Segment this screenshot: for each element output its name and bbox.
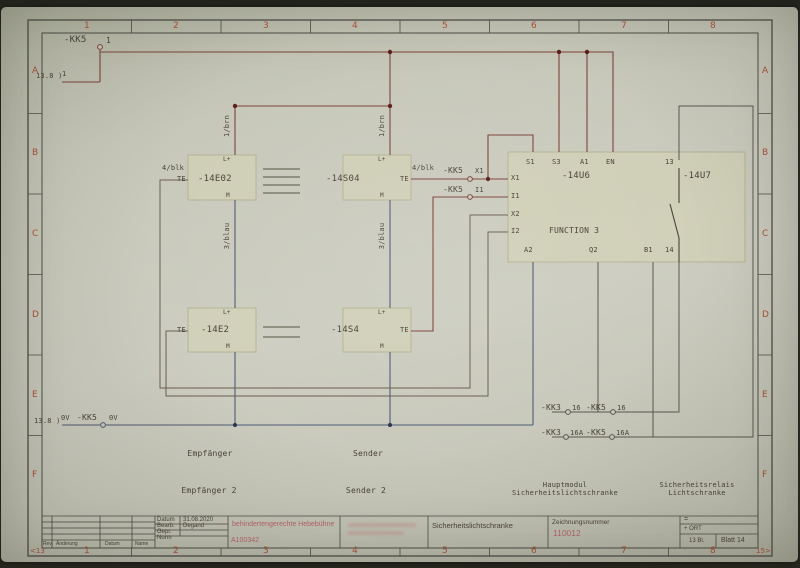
s4-m-terminal: M [380,343,384,350]
wiring-te-loops [160,180,508,396]
kk5-16-connector-label: -KK5 [586,403,606,412]
titleblock-project-name: behindertengerechte Hebebühne [232,521,334,528]
caption-empfaenger: Empfänger [175,449,245,458]
frame-row-d-right: D [762,310,769,320]
titleblock-ort-label: + ORT [684,526,702,532]
frame-row-f-right: F [762,470,767,480]
u6-i2-terminal: I2 [511,227,520,235]
kk3-16-connector-label: -KK3 [541,403,561,412]
frame-col-5-bottom: 5 [442,546,448,556]
u6-b1-terminal: B1 [644,246,653,254]
frame-col-3-bottom: 3 [263,546,269,556]
caption-sender-2: Sender 2 [331,486,401,495]
frame-col-5-top: 5 [442,21,448,31]
u6-q2-terminal: Q2 [589,246,598,254]
s4-te-terminal: TE [400,326,409,334]
wire-label-brn-right: 1/brn [378,111,386,141]
next-sheet-ref: 15> [756,547,771,555]
u6-x2-terminal: X2 [511,210,520,218]
revision-datum-header: Datum [105,541,120,547]
frame-col-3-top: 3 [263,21,269,31]
drawing-frame [28,20,772,556]
e2-ref: -14E2 [201,325,229,335]
caption-hauptmodul-line1: Hauptmodul [505,481,625,489]
revision-rev-header: Rev. [43,541,53,547]
u6-en-terminal: EN [606,158,615,166]
titleblock-zeichnungsnummer-value: 110012 [553,528,581,538]
kk5-x1-connector-label: -KK5 [443,166,463,175]
titleblock-eq-label: = [684,516,688,523]
kk3-16a-connector-label: -KK3 [541,428,561,437]
titleblock-norm-label: Norm [157,535,172,541]
titleblock-doc-title: Sicherheitslichtschranke [432,521,513,530]
frame-row-c-right: C [762,229,768,239]
kk3-16a-pin-label: 16A [570,429,583,437]
u6-s3-terminal: S3 [552,158,561,166]
titleblock-sheet-count: 13 Bl. [689,538,704,544]
frame-col-1-bottom: 1 [84,546,90,556]
wire-label-blk-right: 4/blk [412,164,434,172]
titleblock-project-number: A100342 [231,537,259,544]
frame-row-a-right: A [762,66,768,76]
u6-x1-terminal: X1 [511,174,520,182]
frame-col-7-bottom: 7 [621,546,627,556]
frame-col-1-top: 1 [84,21,90,31]
kk5-16a-connector-label: -KK5 [586,428,606,437]
frame-ticks [28,20,772,556]
e02-lplus-terminal: L+ [223,156,231,163]
kk5-i1-pin-label: I1 [475,186,484,194]
s4-lplus-terminal: L+ [378,309,386,316]
frame-col-8-bottom: 8 [710,546,716,556]
company-stamp-smudge [348,523,416,527]
u6-a1-terminal: A1 [580,158,589,166]
revision-name-header: Name [135,541,148,547]
wire-label-blau-left: 3/blau [223,221,231,251]
frame-col-7-top: 7 [621,21,627,31]
s04-m-terminal: M [380,192,384,199]
titleblock-bearb-value: Degand [183,523,204,529]
kk5-0v-connector-label: -KK5 [77,413,97,422]
0v-cross-reference: 13.8 ) [34,417,61,425]
caption-relais-line2: Lichtschranke [647,489,747,497]
kk5-16-pin-label: 16 [617,404,626,412]
titleblock-sheet-number: Blatt 14 [721,537,745,544]
e02-m-terminal: M [226,192,230,199]
frame-row-e-right: E [762,390,768,400]
s04-lplus-terminal: L+ [378,156,386,163]
s4-ref: -14S4 [331,325,359,335]
kk5-0v-pin-label: 0V [109,414,118,422]
u6-s1-terminal: S1 [526,158,535,166]
frame-col-4-top: 4 [352,21,358,31]
s04-ref: -14S04 [326,174,360,184]
u6-i1-terminal: I1 [511,192,520,200]
u7-13-terminal: 13 [665,158,674,166]
frame-col-6-bottom: 6 [531,546,537,556]
u6-a2-terminal: A2 [524,246,533,254]
caption-empfaenger-2: Empfänger 2 [169,486,249,495]
e2-te-terminal: TE [177,326,186,334]
e2-m-terminal: M [226,343,230,350]
e02-te-terminal: TE [177,175,186,183]
frame-row-f-left: F [32,470,37,480]
company-stamp-smudge [348,531,404,535]
e2-lplus-terminal: L+ [223,309,231,316]
kk5-16a-pin-label: 16A [616,429,629,437]
caption-hauptmodul-line2: Sicherheitslichtschranke [505,489,625,497]
frame-col-2-bottom: 2 [173,546,179,556]
kk5-x1-pin-label: X1 [475,167,484,175]
device-body-u6 [508,152,745,262]
frame-col-8-top: 8 [710,21,716,31]
frame-col-6-top: 6 [531,21,537,31]
caption-sender: Sender [338,449,398,458]
supply-ref-pin: 1 [62,70,66,78]
kk5-1-connector-label: -KK5 [64,35,86,45]
prev-sheet-ref: <13 [30,547,45,555]
u6-ref: -14U6 [562,171,590,181]
revision-aenderung-header: Änderung [56,541,78,547]
frame-row-e-left: E [32,390,38,400]
titleblock-zeichnungsnummer-label: Zeichnungsnummer [552,519,609,526]
u6-function-label: FUNCTION 3 [549,226,599,235]
supply-cross-reference: 13.8 ) [36,72,63,80]
kk5-i1-connector-label: -KK5 [443,185,463,194]
kk5-1-pin-label: 1 [106,36,111,45]
wire-label-brn-left: 1/brn [223,111,231,141]
u7-14-terminal: 14 [665,246,674,254]
e02-ref: -14E02 [198,174,232,184]
u7-ref: -14U7 [683,171,711,181]
light-beam-symbols [263,169,300,337]
caption-relais-line1: Sicherheitsrelais [647,481,747,489]
s04-te-terminal: TE [400,175,409,183]
device-bodies [188,152,745,352]
wire-label-blau-right: 3/blau [378,221,386,251]
frame-row-c-left: C [32,229,38,239]
frame-row-b-left: B [32,148,38,158]
frame-row-b-right: B [762,148,768,158]
frame-col-2-top: 2 [173,21,179,31]
0v-wire-label: 0V [61,414,70,422]
wiring-0v [62,200,533,425]
kk3-16-pin-label: 16 [572,404,581,412]
frame-col-4-bottom: 4 [352,546,358,556]
frame-row-d-left: D [32,310,39,320]
wire-label-blk-left: 4/blk [162,164,184,172]
